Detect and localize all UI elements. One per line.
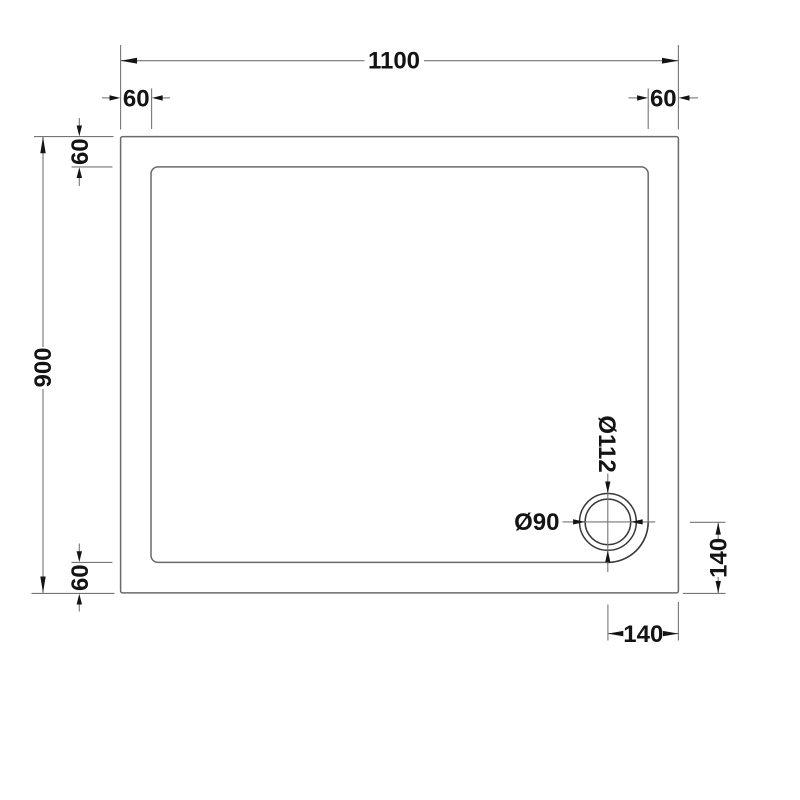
svg-text:140: 140 [705, 538, 732, 578]
svg-text:60: 60 [650, 85, 677, 112]
svg-text:900: 900 [30, 347, 57, 387]
svg-text:60: 60 [67, 564, 94, 591]
svg-text:1100: 1100 [368, 47, 420, 74]
svg-text:140: 140 [623, 621, 663, 648]
svg-text:60: 60 [67, 138, 94, 165]
svg-text:Ø112: Ø112 [593, 415, 620, 472]
svg-text:Ø90: Ø90 [514, 509, 559, 536]
svg-text:60: 60 [123, 85, 150, 112]
